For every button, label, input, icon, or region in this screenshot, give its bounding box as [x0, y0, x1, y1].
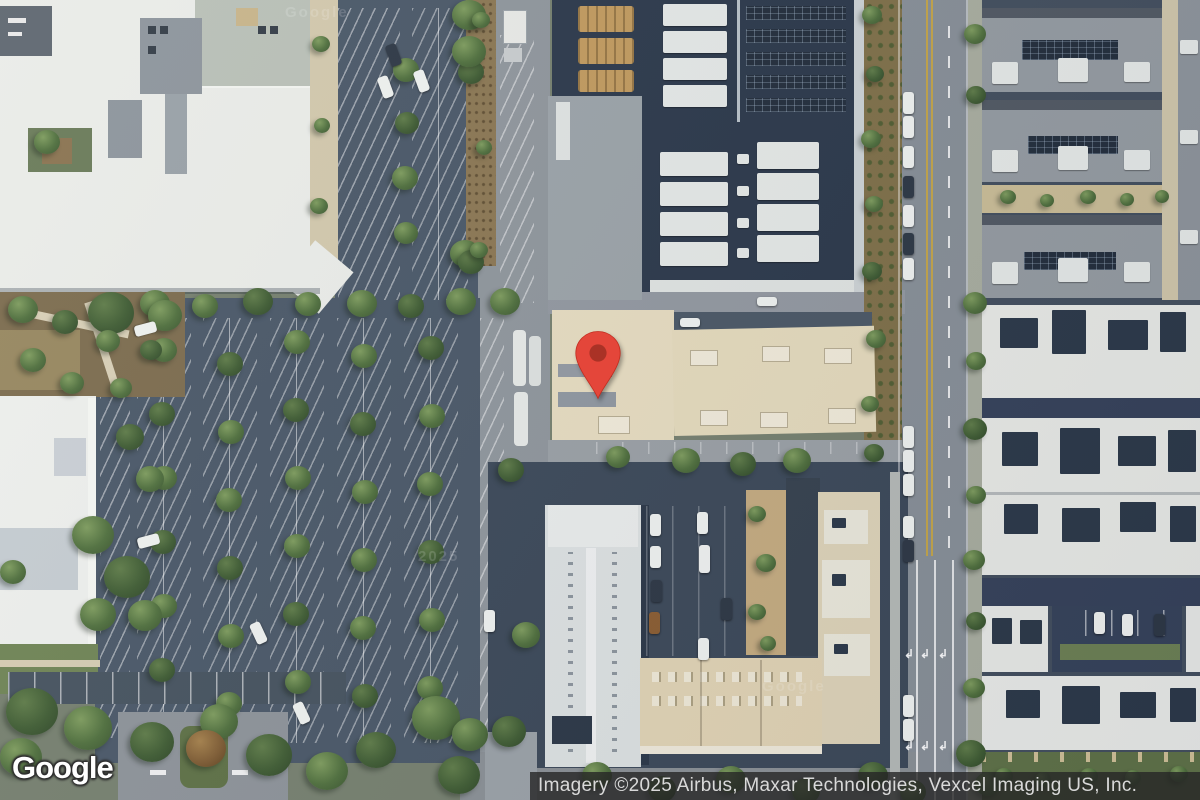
tree [417, 472, 443, 496]
tree [285, 466, 311, 490]
map-terrain [0, 6, 52, 56]
tree [760, 636, 776, 651]
turn-arrow-marking: ↲ [920, 648, 930, 660]
map-terrain [760, 660, 762, 748]
satellite-map[interactable]: ↲ ↲ ↲ ↲ ↲ ↲ [0, 0, 1200, 800]
parked-trailer [514, 392, 528, 446]
tree [246, 734, 292, 776]
tree [966, 86, 986, 104]
car [903, 695, 914, 717]
car [903, 205, 914, 227]
roof-courtyard-cutout [1170, 688, 1196, 722]
tree [6, 688, 58, 735]
roof-courtyard-cutout [1160, 312, 1186, 352]
map-terrain [824, 634, 870, 676]
rooftop-unit [737, 186, 749, 196]
car [484, 610, 495, 632]
map-terrain [822, 560, 870, 618]
solar-panel [1022, 40, 1118, 60]
tree [419, 404, 445, 428]
attribution-bar: Imagery ©2025 Airbus, Maxar Technologies… [530, 772, 1200, 800]
tree [862, 6, 882, 24]
parked-trailer [513, 330, 526, 386]
rooftop-unit [1058, 146, 1088, 170]
roof-courtyard-cutout [1002, 432, 1038, 466]
map-terrain [232, 770, 248, 775]
tree [306, 752, 348, 790]
roof-courtyard-cutout [1118, 436, 1156, 466]
map-terrain [258, 26, 266, 34]
tree [352, 480, 378, 504]
map-terrain [576, 332, 620, 399]
turn-arrow-marking: ↲ [904, 648, 914, 660]
rooftop-unit [660, 152, 728, 176]
tree [861, 130, 881, 148]
solar-panel [746, 98, 846, 112]
car [903, 540, 914, 562]
imagery-watermark: Google [285, 4, 349, 21]
roof-courtyard-cutout [832, 574, 846, 586]
tree [104, 556, 150, 598]
rooftop-unit [737, 218, 749, 228]
parking-stalls [596, 442, 866, 454]
tree [452, 718, 488, 751]
car [1122, 614, 1133, 636]
car [651, 580, 662, 602]
tree [350, 412, 376, 436]
tree [8, 296, 38, 323]
map-terrain [150, 770, 166, 775]
tree [295, 292, 321, 316]
car [903, 258, 914, 280]
rooftop-unit [1058, 258, 1088, 282]
map-terrain [700, 660, 702, 748]
rooftop-unit [757, 173, 819, 200]
map-terrain [700, 410, 728, 426]
roof-courtyard-cutout [1168, 430, 1196, 472]
sidewalk [1162, 0, 1178, 300]
roof-courtyard-cutout [1000, 318, 1038, 348]
tree [392, 166, 418, 190]
rooftop-unit [663, 31, 727, 53]
map-terrain [982, 492, 1200, 495]
rooftop-unit [663, 85, 727, 107]
tree [1155, 190, 1169, 203]
tree [963, 292, 987, 314]
rooftop-unit [757, 142, 819, 169]
tree [136, 466, 164, 492]
car [757, 297, 777, 306]
tree [216, 488, 242, 512]
rooftop-unit [1180, 40, 1198, 54]
tree [351, 548, 377, 572]
tree [284, 330, 310, 354]
tree [110, 378, 132, 398]
map-terrain [54, 438, 86, 476]
rooftop-unit [578, 6, 634, 32]
google-logo-text: Google [12, 750, 113, 785]
rooftop-unit [992, 262, 1018, 284]
tree [498, 458, 524, 482]
lane-marking [934, 560, 936, 800]
tree [285, 670, 311, 694]
solar-panel [746, 29, 846, 43]
tree [966, 612, 986, 630]
rooftop-unit [737, 154, 749, 164]
roof-courtyard-cutout [1052, 310, 1086, 354]
tree [512, 622, 540, 648]
tree [966, 352, 986, 370]
tree [756, 554, 776, 572]
tree [490, 288, 520, 315]
tree [218, 624, 244, 648]
turn-arrow-marking: ↲ [938, 648, 948, 660]
tree [956, 740, 986, 767]
rooftop-unit [1180, 230, 1198, 244]
lane-marking [916, 560, 918, 800]
map-terrain [982, 215, 1162, 225]
tree [866, 66, 884, 82]
rooftop-unit [992, 150, 1018, 172]
tree [314, 118, 330, 133]
tree [217, 352, 243, 376]
rooftop-unit [1124, 262, 1150, 282]
tree [866, 330, 886, 348]
map-terrain [556, 102, 570, 160]
tree [140, 340, 162, 360]
landscaping [1060, 644, 1180, 660]
tree [347, 290, 377, 317]
roof-courtyard-cutout [1060, 428, 1100, 474]
google-logo[interactable]: Google [12, 750, 113, 786]
tree [310, 198, 328, 214]
tree [398, 294, 424, 318]
tree [861, 396, 879, 412]
car [903, 146, 914, 168]
tree [1080, 190, 1096, 204]
car [903, 92, 914, 114]
map-terrain [824, 510, 868, 544]
roof-courtyard-cutout [1170, 506, 1196, 542]
tree [470, 242, 488, 258]
rooftop-unit [1124, 150, 1150, 170]
tree [352, 684, 378, 708]
tree [966, 486, 986, 504]
tree [356, 732, 396, 768]
tree [351, 344, 377, 368]
attribution-text: Imagery ©2025 Airbus, Maxar Technologies… [538, 775, 1137, 796]
solar-panel [746, 6, 846, 20]
car [903, 176, 914, 198]
map-terrain [160, 26, 168, 34]
map-terrain [8, 18, 26, 23]
car [903, 116, 914, 138]
car [903, 233, 914, 255]
car [698, 638, 709, 660]
tree [963, 550, 985, 570]
car [650, 546, 661, 568]
map-terrain [236, 8, 258, 26]
rooftop-unit [660, 242, 728, 266]
rooftop-unit [757, 235, 819, 262]
rooftop-unit [578, 38, 634, 64]
car [697, 512, 708, 534]
tree [438, 756, 480, 794]
tree [217, 556, 243, 580]
rooftop-unit [1124, 62, 1150, 82]
tree [862, 262, 882, 280]
tree [963, 678, 985, 698]
roof-courtyard-cutout [1120, 692, 1156, 718]
footpath [0, 660, 100, 667]
car [680, 318, 700, 327]
rooftop-unit [1058, 58, 1088, 82]
map-terrain [612, 552, 617, 752]
roof-courtyard-cutout [1062, 686, 1100, 724]
tree [116, 424, 144, 450]
tree [446, 288, 476, 315]
car [721, 598, 732, 620]
tree [395, 112, 419, 134]
driveway [982, 578, 1200, 606]
rooftop-unit [660, 182, 728, 206]
tree [394, 222, 418, 244]
map-terrain [982, 100, 1162, 110]
tree [472, 12, 490, 28]
tree [865, 196, 883, 212]
driveway [982, 398, 1200, 418]
map-terrain [982, 8, 1162, 18]
map-terrain [548, 505, 638, 547]
lane-marking [952, 560, 954, 800]
roof-courtyard-cutout [1108, 320, 1148, 350]
rooftop-unit [578, 70, 634, 92]
car [650, 514, 661, 536]
building-wall [650, 280, 854, 292]
turn-arrow-marking: ↲ [904, 740, 914, 752]
tree [149, 658, 175, 682]
car [903, 516, 914, 538]
imagery-watermark: 2025 [418, 548, 459, 565]
tree [80, 598, 116, 631]
tree [192, 294, 218, 318]
tree [418, 336, 444, 360]
tree [1000, 190, 1016, 204]
rooftop-unit [737, 248, 749, 258]
map-terrain [762, 346, 790, 362]
tree [452, 36, 486, 67]
tree [350, 616, 376, 640]
tree [1120, 193, 1134, 206]
tree [128, 600, 162, 631]
roof-courtyard-cutout [1062, 508, 1100, 542]
map-terrain [598, 416, 630, 434]
rooftop-unit [1180, 130, 1198, 144]
car [1094, 612, 1105, 634]
tree [72, 516, 114, 554]
tree [64, 706, 112, 750]
solar-panel [552, 716, 592, 744]
map-terrain [148, 46, 156, 54]
tree [284, 534, 310, 558]
tree [419, 608, 445, 632]
tree [243, 288, 273, 315]
tree [672, 448, 700, 473]
tree [730, 452, 756, 476]
map-terrain [165, 94, 187, 174]
map-pin-icon[interactable] [574, 330, 622, 400]
map-terrain [737, 0, 740, 122]
car [903, 719, 914, 741]
tree [186, 730, 226, 767]
structure [503, 10, 527, 44]
tree [60, 372, 84, 394]
tree [130, 722, 174, 762]
lane-marking [948, 8, 950, 548]
tree [1040, 194, 1054, 207]
parking-stalls [500, 35, 534, 303]
solar-panel [746, 75, 846, 89]
solar-panel [746, 52, 846, 66]
map-terrain [589, 344, 606, 361]
map-terrain [982, 752, 1200, 762]
roof-courtyard-cutout [834, 644, 848, 654]
tree [748, 506, 766, 522]
roof-courtyard-cutout [1006, 690, 1040, 718]
tree [312, 36, 330, 52]
tree [20, 348, 46, 372]
sidewalk [890, 472, 900, 800]
map-terrain [148, 26, 156, 34]
tree [283, 602, 309, 626]
rooftop-unit [992, 62, 1018, 84]
tree [283, 398, 309, 422]
map-terrain [760, 412, 788, 428]
apartment-building-roof [786, 478, 820, 656]
rooftop-unit [663, 58, 727, 80]
tree [864, 444, 884, 462]
lane-marking [926, 0, 928, 556]
map-terrain [690, 350, 718, 366]
roof-courtyard-cutout [992, 618, 1012, 644]
tree [606, 446, 630, 468]
tree [963, 418, 987, 440]
tree [96, 330, 120, 352]
pin-glyph [574, 330, 622, 400]
map-terrain [652, 696, 802, 706]
tree [34, 130, 60, 154]
rooftop-unit [660, 212, 728, 236]
map-terrain [824, 348, 852, 364]
car [649, 612, 660, 634]
turn-arrow-marking: ↲ [920, 740, 930, 752]
rooftop-unit [663, 4, 727, 26]
map-terrain [108, 100, 142, 158]
map-terrain [8, 32, 22, 36]
structure [504, 48, 522, 62]
parked-trailer [529, 336, 541, 386]
map-terrain [270, 26, 278, 34]
map-terrain [828, 408, 856, 424]
tree [748, 604, 766, 620]
building-wall [640, 746, 822, 754]
tree [218, 420, 244, 444]
lane-marking [931, 0, 933, 556]
tree [0, 560, 26, 584]
tree [783, 448, 811, 473]
tree [476, 140, 492, 155]
roof-courtyard-cutout [832, 518, 846, 528]
tree [149, 402, 175, 426]
roof-courtyard-cutout [1020, 620, 1042, 644]
imagery-watermark: Google [762, 678, 826, 695]
tree [964, 24, 986, 44]
tree [492, 716, 526, 747]
rooftop-unit [757, 204, 819, 231]
roof-courtyard-cutout [1004, 504, 1038, 534]
car [903, 450, 914, 472]
car [903, 426, 914, 448]
car [699, 545, 710, 573]
building-wall [854, 0, 864, 292]
roof-courtyard-cutout [1120, 502, 1156, 532]
car [903, 474, 914, 496]
tree [52, 310, 78, 334]
townhouse-roof [1186, 606, 1200, 672]
turn-arrow-marking: ↲ [938, 740, 948, 752]
car [1154, 614, 1165, 636]
tree [88, 292, 134, 334]
